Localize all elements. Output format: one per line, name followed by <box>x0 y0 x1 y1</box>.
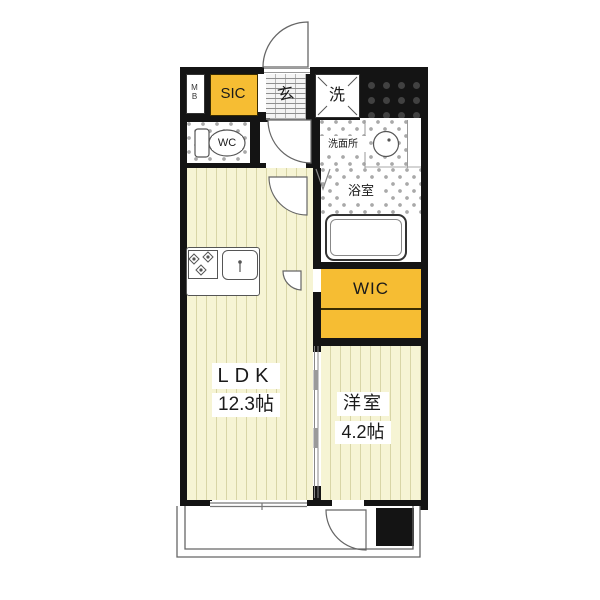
ldk-label-block: LDK 12.3帖 <box>196 360 296 420</box>
shaft-hatched-area <box>360 74 421 118</box>
laundry-label: 洗 <box>322 84 352 108</box>
wall-hall-washroom <box>306 120 320 168</box>
wall-wic-bottom <box>311 338 428 346</box>
bathroom-label: 浴室 <box>339 182 383 200</box>
wall-genkan-laundry <box>306 74 315 120</box>
washroom-label: 洗面所 <box>320 136 366 152</box>
ldk-floor <box>187 168 313 500</box>
bathtub-inner-line <box>330 219 402 256</box>
floor-plan: M B SIC 玄 洗 WC 洗面所 浴室 WIC LDK 12.3帖 洋室 4… <box>0 0 600 600</box>
hallway <box>260 122 306 163</box>
kitchen-sink <box>222 250 258 280</box>
mb-letter-b: B <box>192 93 197 102</box>
ldk-name: LDK <box>212 363 281 389</box>
sliding-door-symbol <box>315 346 319 498</box>
western-room-size: 4.2帖 <box>335 421 390 445</box>
entrance-threshold <box>264 67 310 74</box>
wc-label: WC <box>212 136 242 150</box>
wall-right <box>421 67 428 510</box>
ldk-size: 12.3帖 <box>212 393 280 418</box>
wall-bath-bottom <box>313 262 428 269</box>
meter-box-label: M B <box>186 76 203 110</box>
wall-top-left <box>180 67 264 74</box>
entrance-door-arc <box>263 22 308 67</box>
sic-label: SIC <box>210 74 256 114</box>
stove <box>188 250 218 279</box>
wall-ldk-bath <box>313 163 321 268</box>
bathtub <box>325 214 407 261</box>
western-room-label-block: 洋室 4.2帖 <box>324 386 402 450</box>
wic-shelf-line <box>321 308 421 310</box>
washroom-side-cabinet <box>407 120 421 168</box>
wic-label: WIC <box>321 272 421 306</box>
balcony-pillar <box>376 508 414 546</box>
western-room-name: 洋室 <box>337 392 389 416</box>
wall-top-right <box>310 67 428 74</box>
